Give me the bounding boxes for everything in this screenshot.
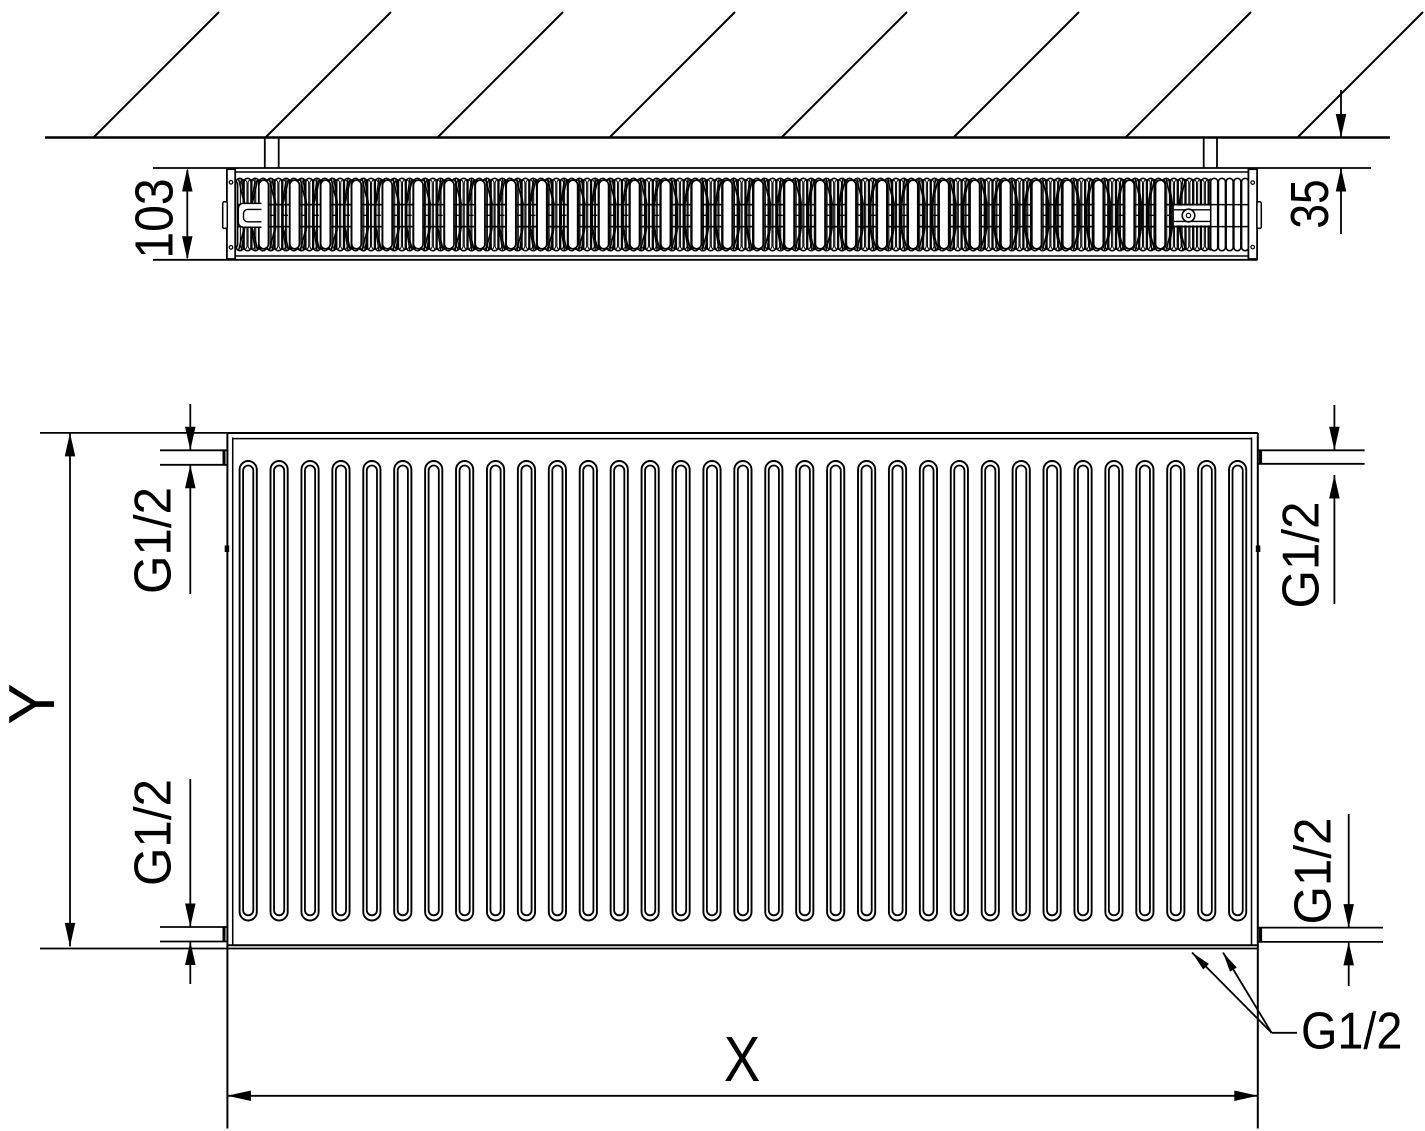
svg-text:G1/2: G1/2	[1301, 1002, 1402, 1060]
svg-text:X: X	[724, 1023, 760, 1095]
svg-text:G1/2: G1/2	[124, 487, 182, 594]
svg-text:103: 103	[124, 178, 184, 258]
svg-text:G1/2: G1/2	[1272, 501, 1330, 608]
svg-text:G1/2: G1/2	[124, 779, 182, 886]
svg-text:G1/2: G1/2	[1284, 817, 1342, 924]
svg-text:35: 35	[1280, 179, 1340, 228]
svg-text:Y: Y	[0, 683, 68, 724]
